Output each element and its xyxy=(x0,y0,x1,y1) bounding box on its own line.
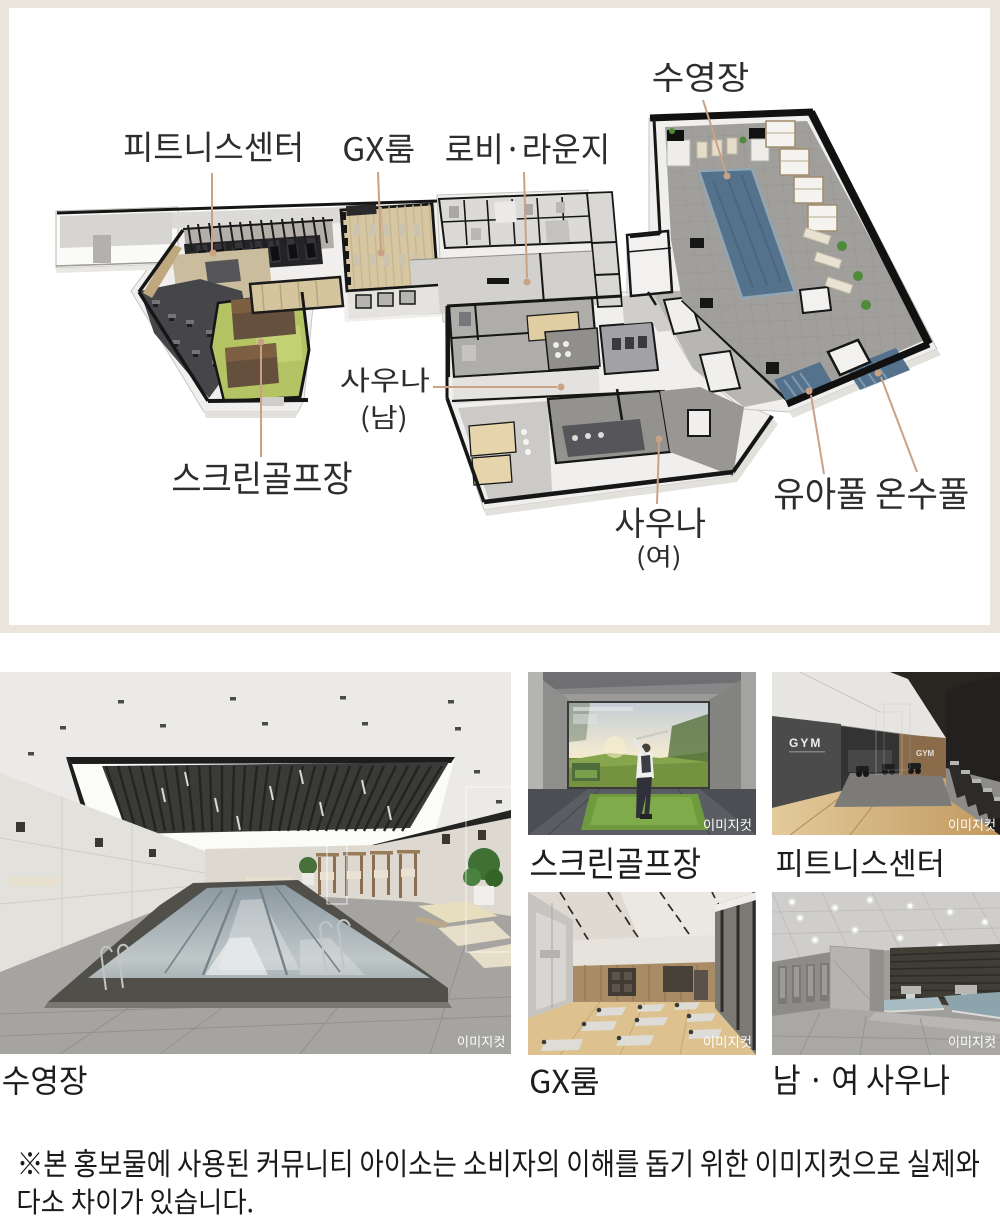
svg-text:GYM: GYM xyxy=(789,736,822,750)
svg-text:GYM: GYM xyxy=(916,749,935,758)
